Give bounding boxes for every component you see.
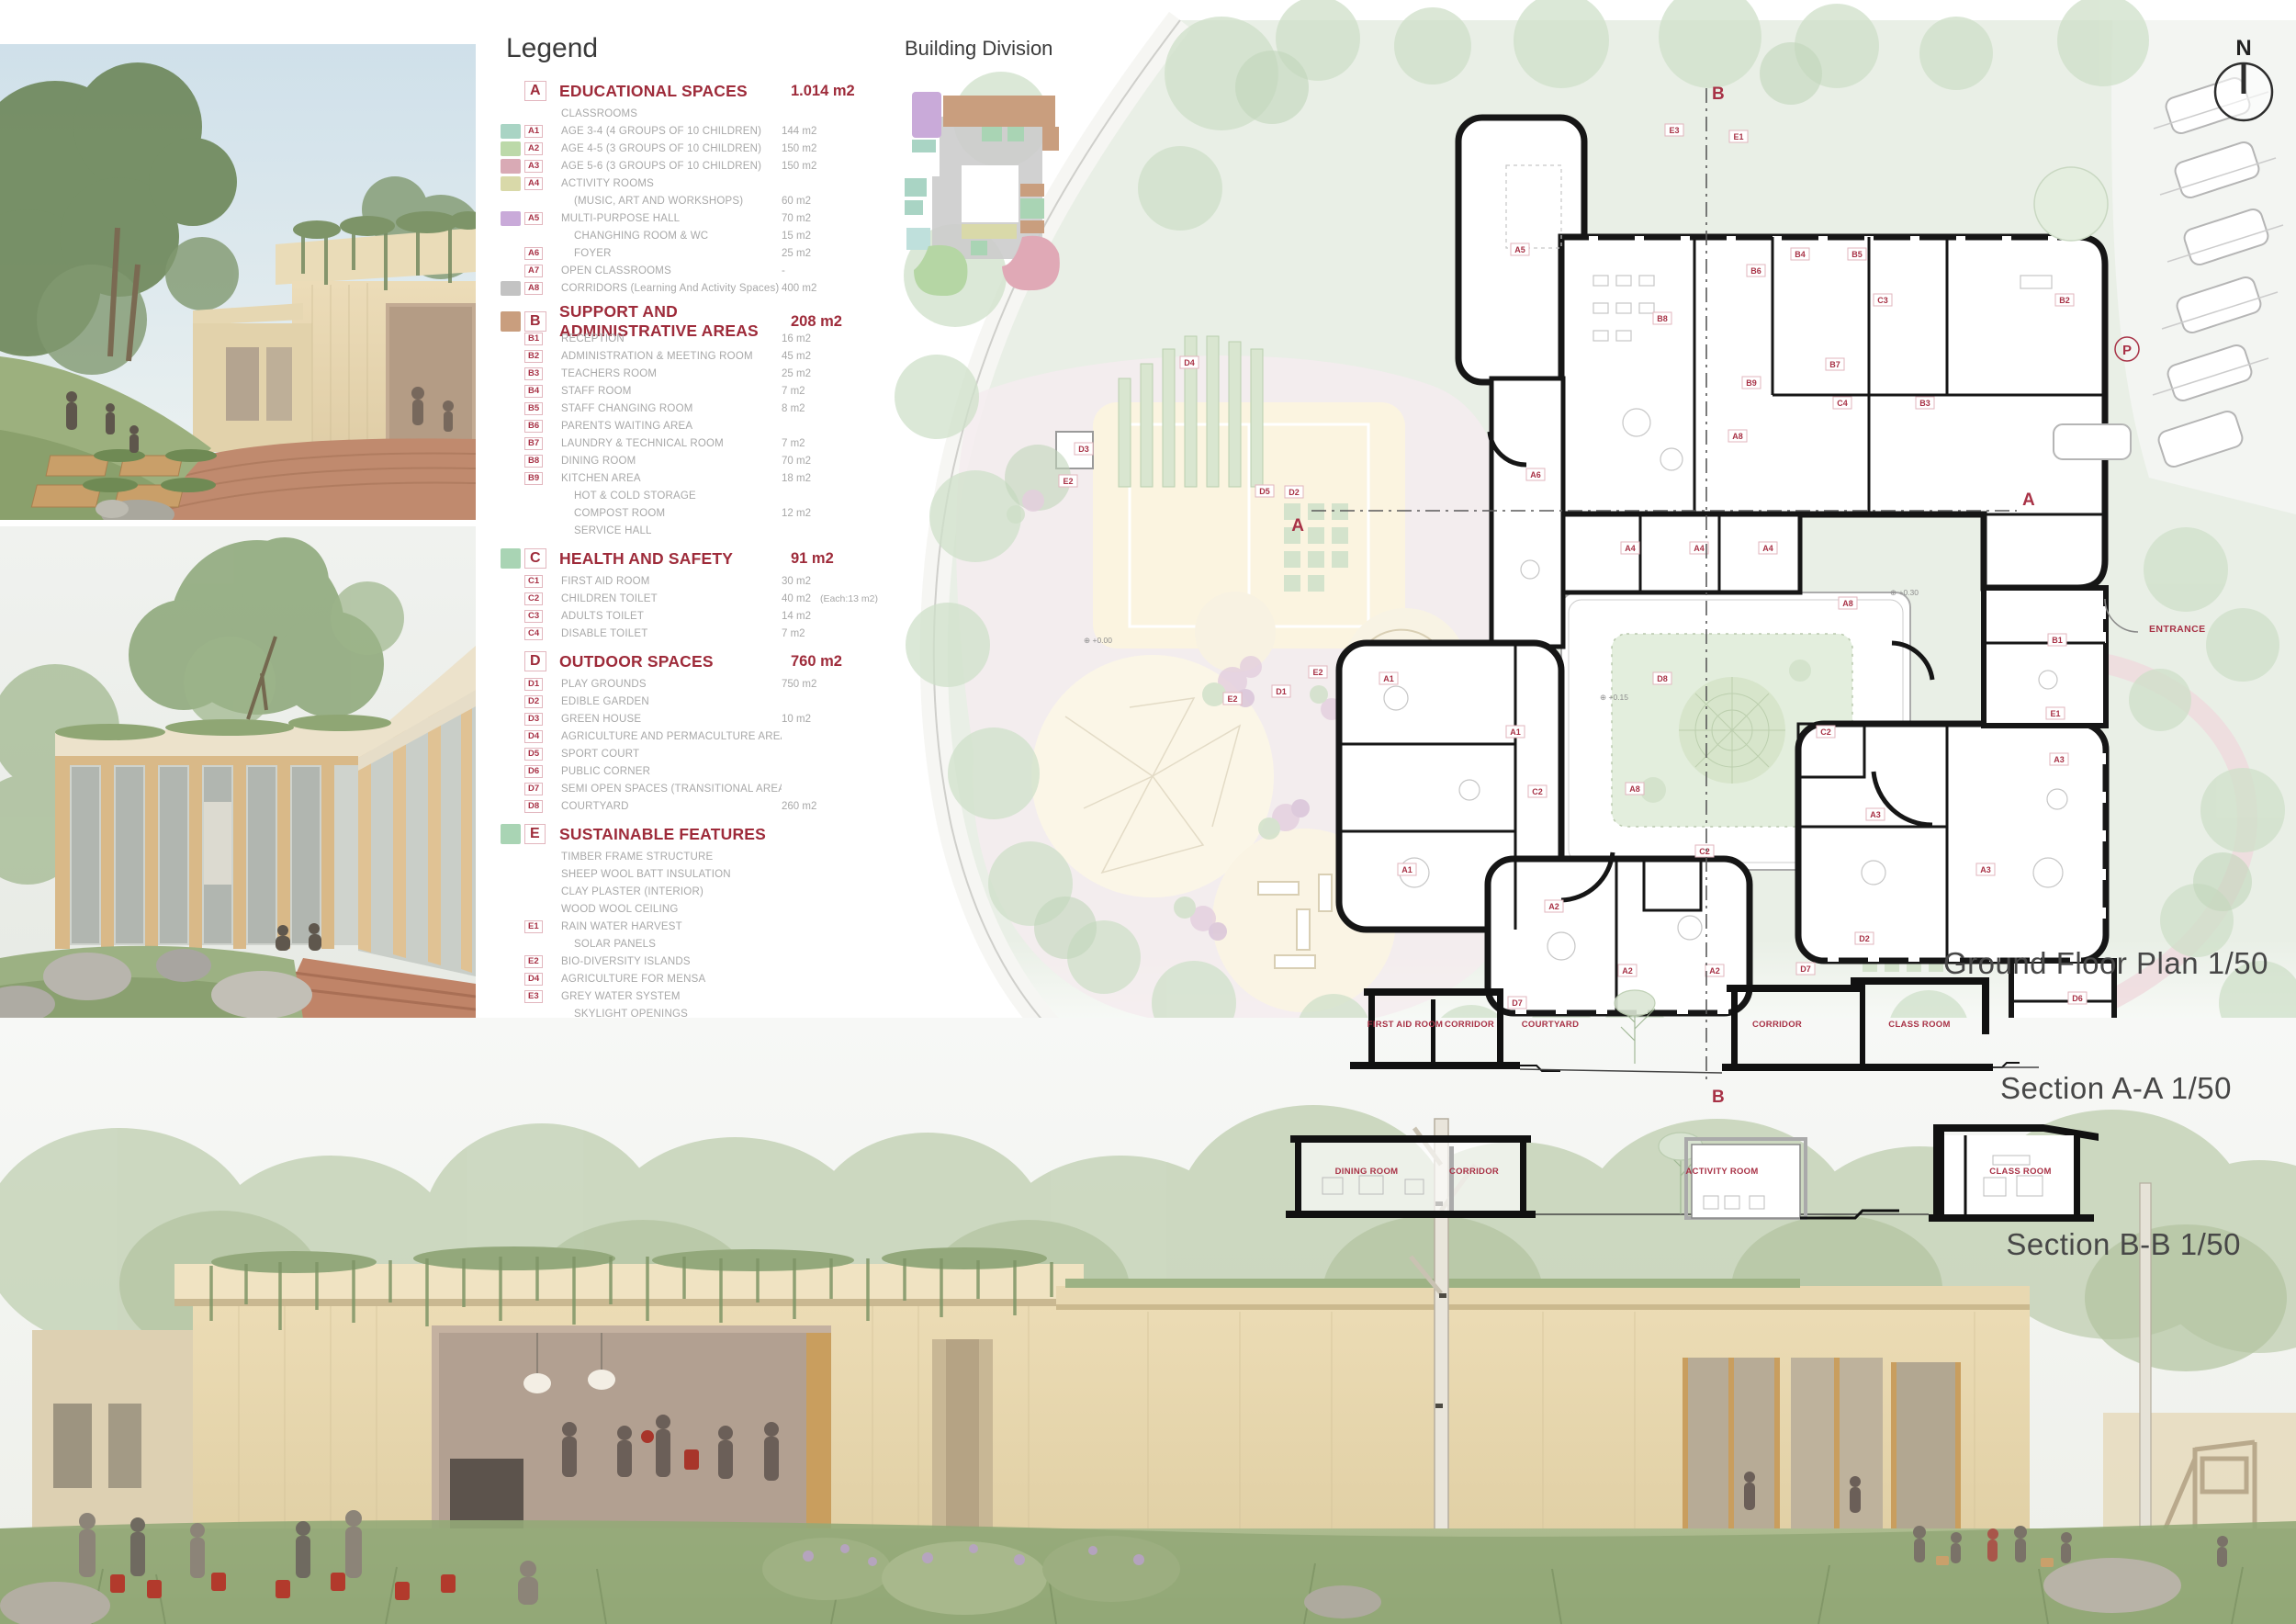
legend-row-label: KITCHEN AREA	[556, 473, 782, 484]
legend-row-label: RAIN WATER HARVEST	[556, 921, 782, 932]
legend-row-area: 8 m2	[782, 403, 901, 414]
legend-row-area: 150 m2	[782, 161, 901, 172]
legend-section-area: 208 m2	[791, 313, 901, 331]
legend-section: D OUTDOOR SPACES 760 m2 D1 PLAY GROUNDS …	[501, 648, 901, 815]
legend-section-area: 1.014 m2	[791, 83, 901, 100]
legend-row-area: 400 m2	[782, 283, 901, 294]
section-room-label: FIRST AID ROOM	[1367, 1020, 1443, 1030]
legend-row-area: 60 m2	[782, 196, 901, 207]
legend-row-area	[782, 731, 901, 742]
svg-text:B3: B3	[1919, 399, 1930, 408]
plan-room-tag: C2	[1528, 785, 1547, 797]
legend-row-label: ADMINISTRATION & MEETING ROOM	[556, 351, 782, 362]
legend-row-tag: C3	[524, 610, 543, 623]
svg-text:A3: A3	[2054, 755, 2065, 764]
legend-section-title: HEALTH AND SAFETY	[552, 549, 791, 569]
plan-room-tag: A4	[1759, 542, 1777, 554]
legend-row-label: DINING ROOM	[556, 456, 782, 467]
plan-room-tag: A4	[1690, 542, 1708, 554]
legend-row-label: OPEN CLASSROOMS	[556, 265, 782, 276]
legend-row: HOT & COLD STORAGE	[501, 487, 901, 504]
legend-row-label: AGRICULTURE AND PERMACULTURE AREAS	[556, 731, 782, 742]
svg-text:D8: D8	[1657, 674, 1668, 683]
legend-section-area: 91 m2	[791, 550, 901, 568]
legend-row-label: AGE 3-4 (4 GROUPS OF 10 CHILDREN)	[556, 126, 782, 137]
legend-row-label: ACTIVITY ROOMS	[556, 178, 782, 189]
legend-row-area: 70 m2	[782, 213, 901, 224]
legend-row-area	[782, 886, 901, 897]
legend-swatch	[501, 211, 521, 226]
plan-room-tag: D5	[1255, 485, 1274, 497]
section-room-label: CLASS ROOM	[1989, 1167, 2051, 1177]
svg-text:B5: B5	[1851, 250, 1863, 259]
section-aa-title: Section A-A 1/50	[1892, 1071, 2232, 1106]
plan-room-tag: E1	[2046, 707, 2065, 719]
legend-row: D7 SEMI OPEN SPACES (TRANSITIONAL AREAS)	[501, 780, 901, 797]
svg-text:D6: D6	[2072, 994, 2083, 1003]
legend-row-tag: B2	[524, 350, 543, 363]
legend-row-area	[782, 939, 901, 950]
legend-row: D4 AGRICULTURE AND PERMACULTURE AREAS	[501, 727, 901, 745]
legend-row: COMPOST ROOM 12 m2	[501, 504, 901, 522]
legend-row-area	[782, 974, 901, 985]
legend-row-label: CORRIDORS (Learning And Activity Spaces)	[556, 283, 782, 294]
legend-row: B1 RECEPTION 16 m2	[501, 330, 901, 347]
legend-row-label: PLAY GROUNDS	[556, 679, 782, 690]
legend-row-label: AGE 5-6 (3 GROUPS OF 10 CHILDREN)	[556, 161, 782, 172]
legend-section: B SUPPORT AND ADMINISTRATIVE AREAS 208 m…	[501, 302, 901, 539]
legend-swatch	[501, 281, 521, 296]
plan-room-tag: E2	[1059, 475, 1077, 487]
legend-row: CLAY PLASTER (INTERIOR)	[501, 883, 901, 900]
legend-row-label: MULTI-PURPOSE HALL	[556, 213, 782, 224]
legend-row-tag: E1	[524, 920, 543, 933]
svg-text:A3: A3	[1870, 810, 1881, 819]
svg-text:C3: C3	[1877, 296, 1888, 305]
plan-room-tag: A8	[1626, 783, 1644, 795]
legend-row: B8 DINING ROOM 70 m2	[501, 452, 901, 469]
legend-row-label: RECEPTION	[556, 333, 782, 344]
building-division: Building Division	[905, 37, 1143, 300]
legend-row-area: 150 m2	[782, 143, 901, 154]
svg-text:C2: C2	[1532, 787, 1543, 796]
plan-room-tag: D1	[1272, 685, 1290, 697]
legend-swatch	[501, 159, 521, 174]
legend-section: A EDUCATIONAL SPACES 1.014 m2 CLASSROOMS…	[501, 77, 901, 297]
legend-row-tag: B3	[524, 367, 543, 380]
plan-room-tag: D3	[1075, 443, 1093, 455]
legend-row: C3 ADULTS TOILET 14 m2	[501, 607, 901, 625]
legend-section-letter: C	[524, 548, 546, 569]
legend-row-area: 45 m2	[782, 351, 901, 362]
legend-row-area: 7 m2	[782, 628, 901, 639]
level-annotation: ⊕ +0.30	[1890, 588, 1919, 597]
legend-row-label: HOT & COLD STORAGE	[556, 491, 782, 502]
legend-row-label: EDIBLE GARDEN	[556, 696, 782, 707]
plan-room-tag: B4	[1791, 248, 1809, 260]
legend-row: B3 TEACHERS ROOM 25 m2	[501, 365, 901, 382]
legend-row-label: AGRICULTURE FOR MENSA	[556, 974, 782, 985]
plan-room-tag: C2	[1817, 726, 1835, 738]
legend-swatch	[501, 824, 521, 844]
presentation-board: ENTRANCE P N	[0, 0, 2296, 1624]
legend-row-area: 18 m2	[782, 473, 901, 484]
svg-text:B2: B2	[2059, 296, 2070, 305]
legend-swatch	[501, 311, 521, 332]
legend-row-tag: D3	[524, 713, 543, 726]
legend-swatch	[501, 548, 521, 569]
legend-row: A6 FOYER 25 m2	[501, 244, 901, 262]
plan-room-tag: D2	[1285, 486, 1303, 498]
legend-row: E2 BIO-DIVERSITY ISLANDS	[501, 953, 901, 970]
legend-row-area	[782, 869, 901, 880]
legend-row-label: STAFF CHANGING ROOM	[556, 403, 782, 414]
legend-row-tag: D6	[524, 765, 543, 778]
plan-room-tag: D6	[2068, 992, 2087, 1004]
legend-row-tag: B8	[524, 455, 543, 468]
legend-row: A3 AGE 5-6 (3 GROUPS OF 10 CHILDREN) 150…	[501, 157, 901, 175]
legend-row-label: GREY WATER SYSTEM	[556, 991, 782, 1002]
legend-row-label: BIO-DIVERSITY ISLANDS	[556, 956, 782, 967]
legend-row-tag: D4	[524, 973, 543, 986]
legend-row: B2 ADMINISTRATION & MEETING ROOM 45 m2	[501, 347, 901, 365]
svg-text:A8: A8	[1732, 432, 1743, 441]
plan-room-tag: E3	[1665, 124, 1683, 136]
plan-room-tag: A1	[1398, 863, 1416, 875]
legend-row-label: CLAY PLASTER (INTERIOR)	[556, 886, 782, 897]
svg-text:E2: E2	[1312, 668, 1322, 677]
legend-row-tag: A3	[524, 160, 543, 173]
plan-room-tag: B6	[1747, 265, 1765, 276]
plan-room-tag: C2	[1695, 845, 1714, 857]
plan-room-tag: A8	[1728, 430, 1747, 442]
svg-text:B8: B8	[1657, 314, 1668, 323]
plan-room-tag: A3	[1866, 808, 1885, 820]
legend-row-label: CLASSROOMS	[556, 108, 782, 119]
legend-row: E3 GREY WATER SYSTEM	[501, 987, 901, 1005]
legend-row-area	[782, 766, 901, 777]
legend-row-tag: D5	[524, 748, 543, 761]
legend-row-tag: B1	[524, 333, 543, 345]
legend-row: D5 SPORT COURT	[501, 745, 901, 762]
legend-row-tag: D2	[524, 695, 543, 708]
legend-row-label: STAFF ROOM	[556, 386, 782, 397]
svg-text:D2: D2	[1859, 934, 1870, 943]
section-bb-title: Section B-B 1/50	[1892, 1227, 2241, 1262]
legend-row: CHANGHING ROOM & WC 15 m2	[501, 227, 901, 244]
legend-row-label: PARENTS WAITING AREA	[556, 421, 782, 432]
legend-row-area: 144 m2	[782, 126, 901, 137]
legend-row: A8 CORRIDORS (Learning And Activity Spac…	[501, 279, 901, 297]
section-room-label: CORRIDOR	[1449, 1167, 1499, 1177]
legend-row-area	[782, 525, 901, 536]
svg-text:A4: A4	[1762, 544, 1773, 553]
plan-room-tag: A4	[1621, 542, 1639, 554]
plan-room-tag: E1	[1729, 130, 1748, 142]
legend-row-area	[782, 956, 901, 967]
plan-room-tag: C3	[1874, 294, 1892, 306]
legend-row-label: GREEN HOUSE	[556, 714, 782, 725]
legend-section-header: D OUTDOOR SPACES 760 m2	[501, 648, 901, 675]
plan-room-tag: D2	[1855, 932, 1874, 944]
legend-row-label: WOOD WOOL CEILING	[556, 904, 782, 915]
plan-room-tag: B2	[2055, 294, 2074, 306]
section-room-label: ACTIVITY ROOM	[1685, 1167, 1758, 1177]
legend-row: B7 LAUNDRY & TECHNICAL ROOM 7 m2	[501, 434, 901, 452]
svg-text:B1: B1	[2052, 636, 2063, 645]
legend-row-area	[782, 851, 901, 863]
legend-row-area: 14 m2	[782, 611, 901, 622]
legend-row-label: FIRST AID ROOM	[556, 576, 782, 587]
legend-row-area: 40 m2(Each:13 m2)	[782, 593, 901, 604]
legend-row-label: TEACHERS ROOM	[556, 368, 782, 379]
legend-row: C2 CHILDREN TOILET 40 m2(Each:13 m2)	[501, 590, 901, 607]
legend-row: D1 PLAY GROUNDS 750 m2	[501, 675, 901, 693]
svg-text:A6: A6	[1530, 470, 1541, 479]
legend-row-label: TIMBER FRAME STRUCTURE	[556, 851, 782, 863]
legend-row-label: SPORT COURT	[556, 749, 782, 760]
legend-row-tag: A4	[524, 177, 543, 190]
section-room-label: CORRIDOR	[1445, 1020, 1494, 1030]
svg-text:D5: D5	[1259, 487, 1270, 496]
legend-section-header: E SUSTAINABLE FEATURES	[501, 820, 901, 848]
entrance-label: ENTRANCE	[2149, 624, 2206, 635]
plan-room-tag: B1	[2048, 634, 2066, 646]
svg-text:A1: A1	[1401, 865, 1412, 874]
legend-row-label: COMPOST ROOM	[556, 508, 782, 519]
legend-row-label: FOYER	[556, 248, 782, 259]
legend-row-tag: C2	[524, 592, 543, 605]
svg-text:E3: E3	[1669, 126, 1679, 135]
legend-row-tag: B9	[524, 472, 543, 485]
plan-room-tag: B5	[1848, 248, 1866, 260]
legend-row: SOLAR PANELS	[501, 935, 901, 953]
svg-text:A3: A3	[1980, 865, 1991, 874]
legend-row-tag: B7	[524, 437, 543, 450]
svg-text:D1: D1	[1276, 687, 1287, 696]
legend-row-label: SEMI OPEN SPACES (TRANSITIONAL AREAS)	[556, 784, 782, 795]
plan-room-tag: B8	[1653, 312, 1671, 324]
legend-panel: Legend A EDUCATIONAL SPACES 1.014 m2 CLA…	[501, 33, 901, 1055]
render-building	[32, 1246, 2296, 1556]
plan-room-tag: A1	[1506, 726, 1525, 738]
legend-row: (MUSIC, ART AND WORKSHOPS) 60 m2	[501, 192, 901, 209]
plan-room-tag: E2	[1223, 693, 1242, 705]
svg-text:B9: B9	[1746, 378, 1757, 388]
plan-room-tag: E2	[1309, 666, 1327, 678]
legend-sections: A EDUCATIONAL SPACES 1.014 m2 CLASSROOMS…	[501, 77, 901, 1022]
legend-row: A1 AGE 3-4 (4 GROUPS OF 10 CHILDREN) 144…	[501, 122, 901, 140]
legend-row: B5 STAFF CHANGING ROOM 8 m2	[501, 400, 901, 417]
legend-section-letter: A	[524, 81, 546, 101]
plan-room-tag: A8	[1839, 597, 1857, 609]
legend-row-tag: D8	[524, 800, 543, 813]
legend-row-area: -	[782, 265, 901, 276]
legend-row: D4 AGRICULTURE FOR MENSA	[501, 970, 901, 987]
legend-section: C HEALTH AND SAFETY 91 m2 C1 FIRST AID R…	[501, 545, 901, 642]
svg-text:A1: A1	[1510, 727, 1521, 737]
legend-row-tag: D1	[524, 678, 543, 691]
parking-p-label: P	[2122, 343, 2132, 358]
legend-section-letter: B	[524, 311, 546, 332]
legend-row-label: LAUNDRY & TECHNICAL ROOM	[556, 438, 782, 449]
legend-row-area	[782, 696, 901, 707]
svg-text:C2: C2	[1699, 847, 1710, 856]
building-division-map	[905, 66, 1079, 296]
render-photo-courtyard	[0, 526, 476, 1019]
legend-swatch	[501, 124, 521, 139]
legend-row-tag: D7	[524, 783, 543, 795]
svg-text:B6: B6	[1750, 266, 1761, 276]
level-annotation: ⊕ +0.15	[1600, 693, 1628, 702]
legend-row-area	[782, 784, 901, 795]
svg-text:D3: D3	[1078, 445, 1089, 454]
svg-text:E2: E2	[1063, 477, 1073, 486]
svg-text:A4: A4	[1625, 544, 1636, 553]
legend-row-area	[782, 749, 901, 760]
legend-row-tag: A7	[524, 265, 543, 277]
legend-row-label: DISABLE TOILET	[556, 628, 782, 639]
legend-row-tag: A1	[524, 125, 543, 138]
svg-text:A8: A8	[1629, 784, 1640, 794]
legend-row-tag: C1	[524, 575, 543, 588]
svg-text:A4: A4	[1694, 544, 1705, 553]
legend-row-label: CHILDREN TOILET	[556, 593, 782, 604]
legend-row: A7 OPEN CLASSROOMS -	[501, 262, 901, 279]
svg-text:A2: A2	[1548, 902, 1559, 911]
svg-text:B4: B4	[1795, 250, 1806, 259]
legend-row-area	[782, 421, 901, 432]
legend-row-label: SERVICE HALL	[556, 525, 782, 536]
section-room-label: DINING ROOM	[1335, 1167, 1399, 1177]
legend-row-tag: A5	[524, 212, 543, 225]
svg-text:C4: C4	[1837, 399, 1848, 408]
legend-row-area: 260 m2	[782, 801, 901, 812]
legend-section-title: OUTDOOR SPACES	[552, 652, 791, 671]
legend-row-area: 7 m2	[782, 386, 901, 397]
legend-row-area: 7 m2	[782, 438, 901, 449]
legend-row-area	[782, 991, 901, 1002]
legend-row: C4 DISABLE TOILET 7 m2	[501, 625, 901, 642]
legend-row: B6 PARENTS WAITING AREA	[501, 417, 901, 434]
plan-room-tag: A1	[1379, 672, 1398, 684]
legend-row: B4 STAFF ROOM 7 m2	[501, 382, 901, 400]
plan-room-tag: D4	[1180, 356, 1199, 368]
plan-room-tag: A6	[1526, 468, 1545, 480]
legend-row-tag: A2	[524, 142, 543, 155]
legend-row-area	[782, 921, 901, 932]
render-photo-exterior	[0, 44, 476, 520]
legend-row: SERVICE HALL	[501, 522, 901, 539]
legend-row-tag: B5	[524, 402, 543, 415]
legend-row: D2 EDIBLE GARDEN	[501, 693, 901, 710]
svg-text:E1: E1	[1733, 132, 1743, 141]
plan-room-tag: A5	[1511, 243, 1529, 255]
legend-row: D8 COURTYARD 260 m2	[501, 797, 901, 815]
building-division-title: Building Division	[905, 37, 1143, 61]
legend-row-tag: A8	[524, 282, 543, 295]
legend-row-tag: A6	[524, 247, 543, 260]
plan-room-tag: B7	[1826, 358, 1844, 370]
legend-row: SHEEP WOOL BATT INSULATION	[501, 865, 901, 883]
legend-row: D6 PUBLIC CORNER	[501, 762, 901, 780]
plan-room-tag: A3	[2050, 753, 2068, 765]
legend-section-header: B SUPPORT AND ADMINISTRATIVE AREAS 208 m…	[501, 302, 901, 330]
plan-room-tag: B9	[1742, 377, 1761, 389]
legend-row: D3 GREEN HOUSE 10 m2	[501, 710, 901, 727]
svg-text:A8: A8	[1842, 599, 1853, 608]
legend-row-tag: D4	[524, 730, 543, 743]
legend-row-label: ADULTS TOILET	[556, 611, 782, 622]
legend-section-title: SUSTAINABLE FEATURES	[552, 825, 791, 844]
legend-row: TIMBER FRAME STRUCTURE	[501, 848, 901, 865]
legend-row-area	[782, 491, 901, 502]
plan-room-tag: C4	[1833, 397, 1851, 409]
section-room-label: CORRIDOR	[1752, 1020, 1802, 1030]
svg-text:E1: E1	[2050, 709, 2060, 718]
legend-row-label: SOLAR PANELS	[556, 939, 782, 950]
legend-row-area: 12 m2	[782, 508, 901, 519]
legend-row: CLASSROOMS	[501, 105, 901, 122]
legend-row-label: PUBLIC CORNER	[556, 766, 782, 777]
legend-title: Legend	[506, 33, 901, 64]
legend-row: A2 AGE 4-5 (3 GROUPS OF 10 CHILDREN) 150…	[501, 140, 901, 157]
legend-row: E1 RAIN WATER HARVEST	[501, 918, 901, 935]
legend-row-tag: B4	[524, 385, 543, 398]
legend-row-tag: E2	[524, 955, 543, 968]
legend-row-label: SHEEP WOOL BATT INSULATION	[556, 869, 782, 880]
legend-row-area: 25 m2	[782, 248, 901, 259]
legend-section-title: EDUCATIONAL SPACES	[552, 82, 791, 101]
plan-room-tag: A2	[1545, 900, 1563, 912]
legend-row: B9 KITCHEN AREA 18 m2	[501, 469, 901, 487]
legend-row: A4 ACTIVITY ROOMS	[501, 175, 901, 192]
plan-room-tag: D8	[1653, 672, 1671, 684]
legend-row-area: 70 m2	[782, 456, 901, 467]
legend-row-label: (MUSIC, ART AND WORKSHOPS)	[556, 196, 782, 207]
legend-section-area: 760 m2	[791, 653, 901, 671]
legend-row: A5 MULTI-PURPOSE HALL 70 m2	[501, 209, 901, 227]
legend-section-letter: D	[524, 651, 546, 671]
legend-row-label: AGE 4-5 (3 GROUPS OF 10 CHILDREN)	[556, 143, 782, 154]
svg-text:A5: A5	[1514, 245, 1525, 254]
legend-row-area: 15 m2	[782, 231, 901, 242]
plan-room-tag: A3	[1976, 863, 1995, 875]
legend-section-letter: E	[524, 824, 546, 844]
ground-floor-plan-title: Ground Floor Plan 1/50	[1892, 946, 2268, 981]
legend-row-label: COURTYARD	[556, 801, 782, 812]
section-room-label: COURTYARD	[1522, 1020, 1580, 1030]
svg-text:E2: E2	[1227, 694, 1237, 704]
legend-swatch	[501, 176, 521, 191]
legend-section: E SUSTAINABLE FEATURES TIMBER FRAME STRU…	[501, 820, 901, 1022]
legend-row-tag: C4	[524, 627, 543, 640]
legend-section-header: C HEALTH AND SAFETY 91 m2	[501, 545, 901, 572]
legend-row-area: 10 m2	[782, 714, 901, 725]
svg-text:B7: B7	[1829, 360, 1840, 369]
svg-text:D4: D4	[1184, 358, 1195, 367]
plan-room-tag: B3	[1916, 397, 1934, 409]
legend-row: WOOD WOOL CEILING	[501, 900, 901, 918]
legend-row-area: 30 m2	[782, 576, 901, 587]
legend-row-area	[782, 108, 901, 119]
legend-swatch	[501, 141, 521, 156]
svg-text:D2: D2	[1289, 488, 1300, 497]
svg-text:C2: C2	[1820, 727, 1831, 737]
section-room-label: CLASS ROOM	[1888, 1020, 1950, 1030]
render-panorama	[0, 1018, 2296, 1624]
legend-row-area	[782, 178, 901, 189]
